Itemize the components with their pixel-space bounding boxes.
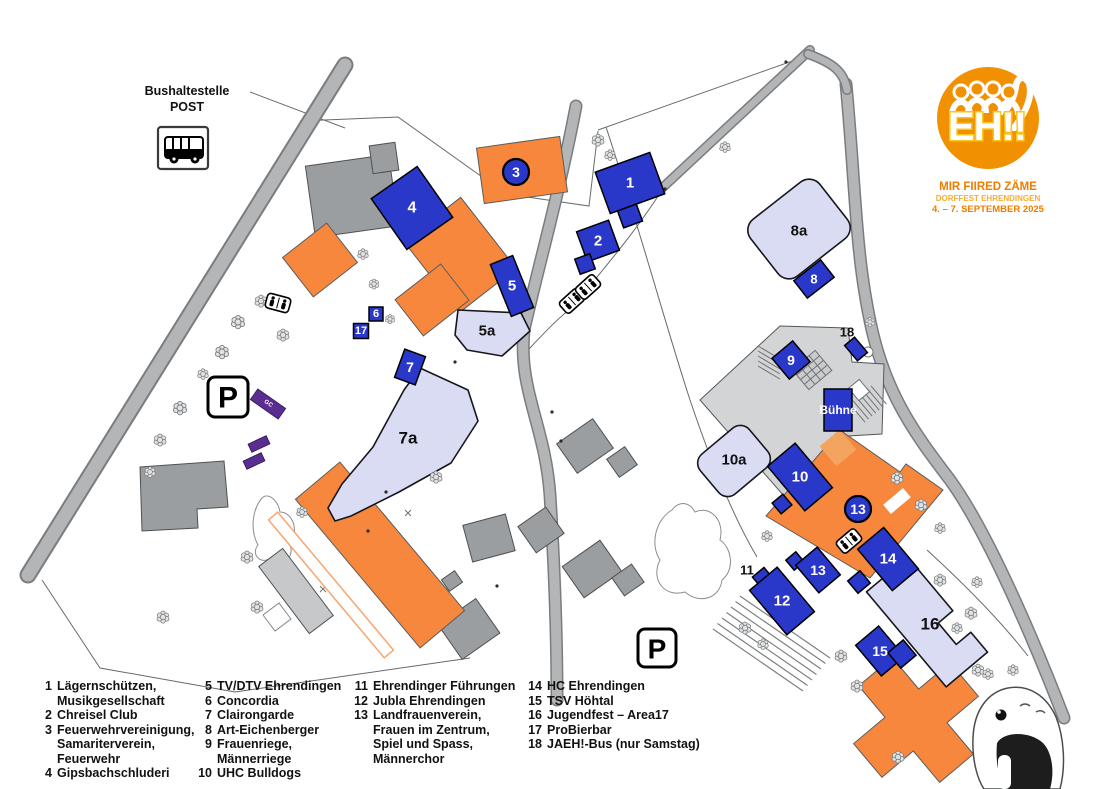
marker-13-circle: 13 bbox=[850, 501, 866, 517]
bus-stop-title: Bushaltestelle bbox=[145, 84, 230, 98]
marker-4: 4 bbox=[408, 200, 417, 217]
parking-p: P bbox=[648, 634, 667, 665]
wc-icon bbox=[264, 293, 291, 314]
zone-label-5a: 5a bbox=[479, 323, 496, 340]
logo-wordmark: EH!! bbox=[948, 105, 1026, 149]
logo-tagline: MIR FIIRED ZÄME bbox=[939, 180, 1037, 193]
zone-label-16: 16 bbox=[921, 615, 940, 634]
marker-5: 5 bbox=[508, 278, 516, 295]
label-18: 18 bbox=[840, 325, 854, 340]
marker-7: 7 bbox=[406, 359, 414, 375]
marker-1: 1 bbox=[626, 175, 634, 192]
bus-icon bbox=[158, 127, 208, 169]
zone-label-7a: 7a bbox=[399, 429, 418, 448]
logo-dates: 4. – 7. SEPTEMBER 2025 bbox=[932, 204, 1045, 215]
event-logo: EH!! MIR FIIRED ZÄME DORFFEST EHRENDINGE… bbox=[932, 67, 1045, 215]
parking-sign-south: P bbox=[638, 629, 676, 667]
logo-event-name: DORFFEST EHRENDINGEN bbox=[936, 194, 1041, 203]
site-map-svg: GC 1 bbox=[0, 0, 1100, 789]
marker-14: 14 bbox=[880, 551, 897, 568]
bus-stop-subtitle: POST bbox=[170, 100, 204, 114]
marker-8: 8 bbox=[810, 272, 817, 287]
marker-15: 15 bbox=[872, 643, 888, 659]
marker-2: 2 bbox=[594, 233, 602, 250]
zone-label-8a: 8a bbox=[791, 223, 808, 240]
parking-p: P bbox=[218, 382, 238, 415]
mascot-drawing bbox=[973, 687, 1064, 789]
marker-17: 17 bbox=[355, 325, 367, 337]
marker-9: 9 bbox=[787, 352, 795, 368]
parking-sign-west: P bbox=[208, 377, 248, 417]
marker-3: 3 bbox=[512, 164, 520, 180]
bus-stop: Bushaltestelle POST bbox=[145, 84, 230, 169]
label-11: 11 bbox=[740, 563, 754, 578]
zone-label-10a: 10a bbox=[721, 452, 747, 469]
festival-site-map: GC 1 bbox=[0, 0, 1100, 789]
stage-label: Bühne bbox=[819, 403, 857, 417]
marker-10: 10 bbox=[792, 469, 809, 486]
marker-13: 13 bbox=[810, 562, 826, 578]
marker-12: 12 bbox=[774, 593, 791, 610]
marker-6: 6 bbox=[373, 308, 379, 320]
